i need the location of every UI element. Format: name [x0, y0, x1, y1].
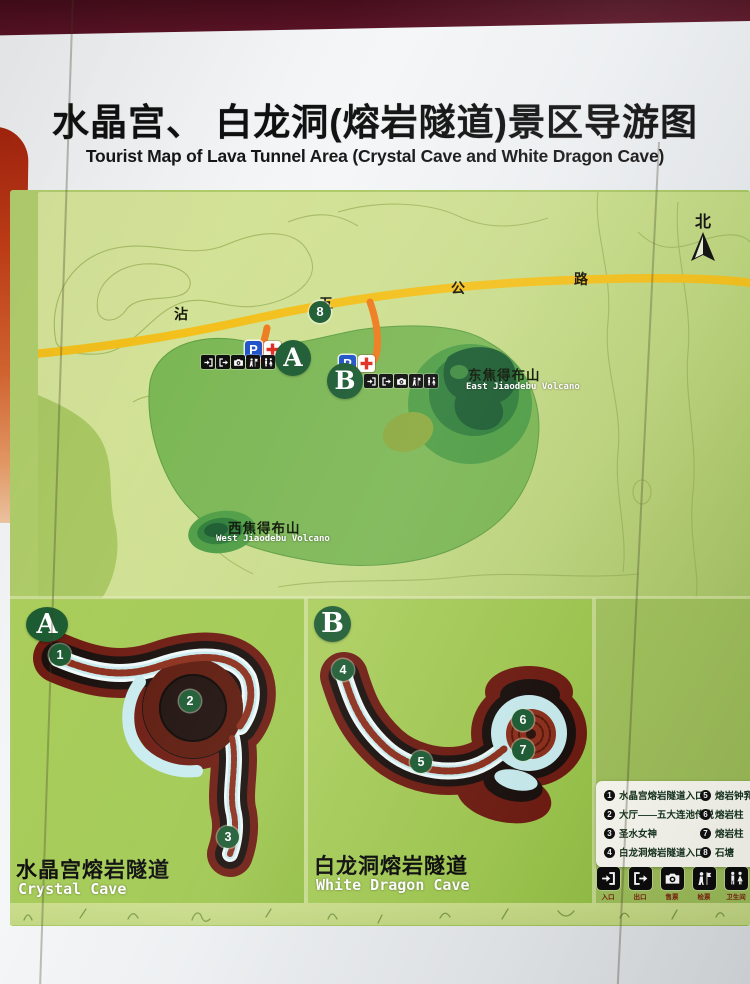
entrance-icon	[201, 355, 215, 369]
restroom-icon	[261, 355, 275, 369]
west-volcano-label-en: West Jiaodebu Volcano	[216, 534, 330, 544]
guide-icon	[246, 355, 260, 369]
facility-item: 卫生间	[723, 867, 749, 901]
exit-icon	[216, 355, 230, 369]
guide-icon	[409, 374, 423, 388]
ticket-check-icon	[693, 867, 716, 890]
white-dragon-cave-panel: B 4 5 6 7 白龙洞熔岩隧道 White Dragon Cave	[308, 600, 592, 903]
facility-item: 检票	[691, 867, 717, 901]
compass-north: 北	[690, 208, 716, 267]
facility-icon-strip-a	[201, 355, 275, 369]
legend-item: 1 水晶宫熔岩隧道入口	[604, 788, 705, 802]
map-marker-a: A	[275, 340, 311, 376]
facility-label: 售票	[659, 891, 685, 901]
east-volcano-label-en: East Jiaodebu Volcano	[466, 382, 580, 392]
east-volcano-cone	[408, 344, 532, 464]
legend-number: 1	[604, 790, 615, 801]
exit-icon	[629, 867, 652, 890]
facility-item: 出口	[627, 867, 653, 901]
map-title-english: Tourist Map of Lava Tunnel Area (Crystal…	[0, 146, 750, 167]
map-title-chinese: 水晶宫、 白龙洞(熔岩隧道)景区导游图	[0, 102, 750, 145]
legend-item: 4 白龙洞熔岩隧道入口	[604, 845, 705, 859]
legend-number: 5	[700, 790, 711, 801]
road-name-char: 公	[451, 278, 465, 298]
east-volcano-label-zh: 东焦得布山	[468, 364, 541, 384]
map-marker-b: B	[327, 363, 363, 399]
panel-b-badge: B	[314, 606, 351, 642]
cave-point-3: 3	[217, 826, 239, 848]
legend-number: 6	[700, 809, 711, 820]
ticket-icon	[661, 867, 684, 890]
legend-item: 5 熔岩钟乳、熔	[700, 788, 750, 802]
legend-item: 3 圣水女神	[604, 826, 657, 840]
facility-label: 入口	[595, 891, 621, 901]
facility-label: 检票	[691, 891, 717, 901]
legend-label: 熔岩柱	[715, 826, 744, 840]
grass-decoration-band	[10, 903, 750, 925]
tourist-map-sign-photo: 水晶宫、 白龙洞(熔岩隧道)景区导游图 Tourist Map of Lava …	[0, 0, 750, 984]
camera-icon	[394, 374, 408, 388]
facility-label: 出口	[627, 891, 653, 901]
legend-item: 2 大厅——五大连池传说	[604, 807, 714, 821]
map-spot-8: 8	[309, 301, 331, 323]
legend-label: 熔岩钟乳、熔	[715, 788, 750, 802]
legend-label: 熔岩柱	[715, 807, 744, 821]
title-block: 水晶宫、 白龙洞(熔岩隧道)景区导游图 Tourist Map of Lava …	[0, 102, 750, 167]
facility-icon-strip-b	[364, 374, 438, 388]
photo-top-dark-band	[0, 0, 750, 36]
grass-squiggles	[10, 903, 750, 925]
cave-point-5: 5	[410, 751, 432, 773]
panel-a-caption-en: Crystal Cave	[18, 880, 126, 898]
north-label: 北	[690, 208, 716, 232]
legend-item: 6 熔岩柱	[700, 807, 744, 821]
facility-item: 入口	[595, 867, 621, 901]
first-aid-badge-b	[358, 355, 375, 372]
cave-point-6: 6	[512, 709, 534, 731]
main-terrain-map: 北 沾 五 公 路 8 P	[38, 192, 750, 598]
legend-number: 4	[604, 847, 615, 858]
exit-icon	[379, 374, 393, 388]
road-name-char: 路	[574, 269, 588, 289]
legend-number: 8	[700, 847, 711, 858]
facilities-key-row: 入口 出口 售票 检票 卫生间 P 停车场	[595, 867, 750, 901]
cave-point-4: 4	[332, 659, 354, 681]
panel-divider-horizontal	[10, 596, 750, 599]
restroom-icon	[725, 867, 748, 890]
terrain-graphics	[38, 192, 750, 598]
panel-b-caption-en: White Dragon Cave	[316, 876, 470, 894]
legend-item: 7 熔岩柱	[700, 826, 744, 840]
legend-item: 8 石塘	[700, 845, 734, 859]
crystal-cave-panel: A 1 2 3 水晶宫熔岩隧道 Crystal Cave	[12, 600, 304, 903]
restroom-icon	[424, 374, 438, 388]
legend-number: 7	[700, 828, 711, 839]
legend-box: 1 水晶宫熔岩隧道入口 2 大厅——五大连池传说 3 圣水女神 4 白龙洞熔岩隧…	[596, 781, 750, 867]
panel-a-badge: A	[26, 607, 68, 642]
legend-number: 2	[604, 809, 615, 820]
road-name-char: 沾	[174, 304, 188, 324]
north-arrow-icon	[690, 232, 716, 262]
facility-item: 售票	[659, 867, 685, 901]
legend-label: 石塘	[715, 845, 734, 859]
entrance-icon	[597, 867, 620, 890]
first-aid-cross-icon	[358, 355, 375, 372]
facility-label: 卫生间	[723, 891, 749, 901]
legend-label: 白龙洞熔岩隧道入口	[619, 845, 705, 859]
camera-icon	[231, 355, 245, 369]
cave-point-2: 2	[179, 690, 201, 712]
cave-point-7: 7	[512, 739, 534, 761]
legend-label: 水晶宫熔岩隧道入口	[619, 788, 705, 802]
legend-number: 3	[604, 828, 615, 839]
entrance-icon	[364, 374, 378, 388]
